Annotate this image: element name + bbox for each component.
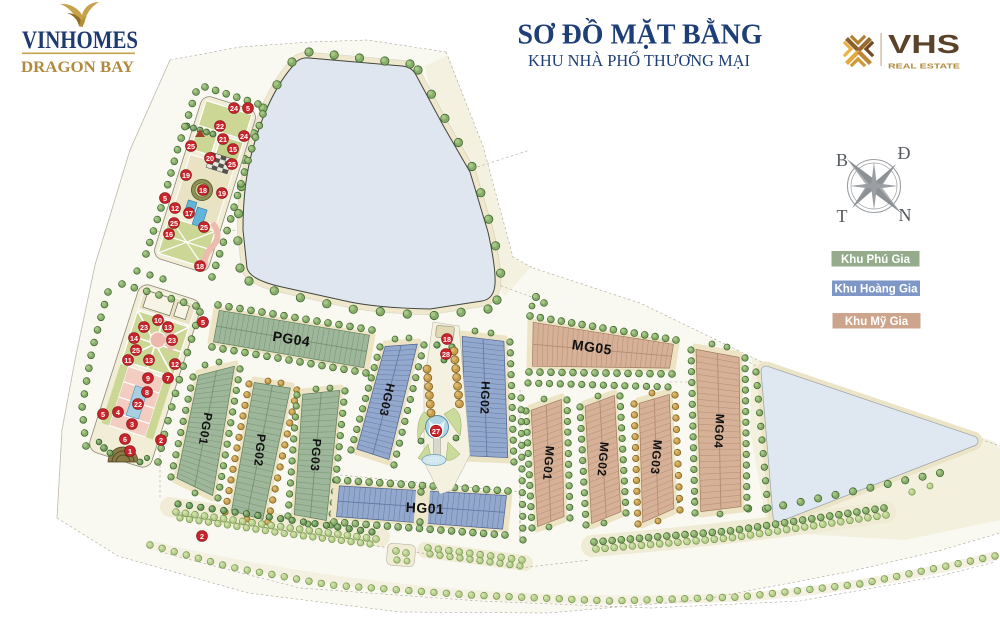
svg-text:24: 24 [230, 104, 238, 113]
svg-text:DRAGON BAY: DRAGON BAY [21, 59, 134, 76]
svg-text:REAL ESTATE: REAL ESTATE [888, 62, 960, 71]
svg-text:22: 22 [216, 122, 224, 131]
svg-text:13: 13 [145, 356, 153, 365]
svg-text:25: 25 [170, 219, 178, 228]
svg-text:18: 18 [443, 335, 451, 344]
svg-text:17: 17 [185, 209, 193, 218]
svg-text:20: 20 [206, 154, 214, 163]
svg-text:27: 27 [432, 427, 440, 436]
svg-text:5: 5 [201, 318, 205, 327]
svg-text:5: 5 [246, 104, 250, 113]
svg-text:16: 16 [165, 230, 173, 239]
svg-text:14: 14 [130, 334, 138, 343]
svg-text:2: 2 [200, 532, 204, 541]
svg-text:MG04: MG04 [711, 414, 727, 449]
svg-text:9: 9 [146, 374, 150, 383]
svg-text:24: 24 [240, 132, 248, 141]
svg-text:25: 25 [200, 223, 208, 232]
svg-text:13: 13 [164, 323, 172, 332]
svg-text:8: 8 [145, 388, 149, 397]
svg-text:5: 5 [163, 194, 167, 203]
svg-text:25: 25 [132, 346, 140, 355]
svg-text:18: 18 [199, 186, 207, 195]
svg-text:25: 25 [187, 142, 195, 151]
svg-text:KHU NHÀ PHỐ THƯƠNG MẠI: KHU NHÀ PHỐ THƯƠNG MẠI [528, 51, 750, 70]
svg-text:Khu Hoàng Gia: Khu Hoàng Gia [834, 283, 918, 295]
svg-text:18: 18 [196, 262, 204, 271]
svg-text:12: 12 [171, 360, 179, 369]
svg-text:11: 11 [124, 356, 132, 365]
svg-text:7: 7 [166, 374, 170, 383]
svg-text:T: T [837, 206, 848, 226]
svg-text:19: 19 [182, 171, 190, 180]
svg-text:25: 25 [228, 160, 236, 169]
svg-text:19: 19 [218, 189, 226, 198]
svg-text:SƠ ĐỒ MẶT BẰNG: SƠ ĐỒ MẶT BẰNG [518, 17, 763, 51]
svg-text:28: 28 [442, 350, 450, 359]
svg-text:HG01: HG01 [405, 499, 444, 517]
svg-text:6: 6 [123, 435, 127, 444]
svg-text:B: B [836, 150, 848, 170]
svg-text:4: 4 [116, 408, 120, 417]
svg-text:15: 15 [229, 145, 237, 154]
svg-text:1: 1 [128, 447, 132, 456]
svg-text:HG02: HG02 [477, 381, 492, 415]
svg-text:VHS: VHS [888, 29, 960, 59]
svg-text:PG03: PG03 [308, 438, 324, 472]
svg-text:2: 2 [159, 436, 163, 445]
svg-text:22: 22 [134, 400, 142, 409]
svg-text:Đ: Đ [898, 143, 911, 163]
svg-text:Khu Mỹ Gia: Khu Mỹ Gia [845, 316, 909, 328]
svg-text:3: 3 [130, 420, 134, 429]
svg-text:Khu Phú Gia: Khu Phú Gia [841, 254, 911, 266]
svg-text:23: 23 [140, 323, 148, 332]
svg-text:VINHOMES: VINHOMES [22, 27, 138, 54]
svg-text:5: 5 [101, 410, 105, 419]
svg-text:12: 12 [171, 204, 179, 213]
svg-text:N: N [899, 205, 912, 225]
svg-text:21: 21 [219, 135, 227, 144]
svg-text:23: 23 [168, 336, 176, 345]
svg-text:10: 10 [154, 316, 162, 325]
